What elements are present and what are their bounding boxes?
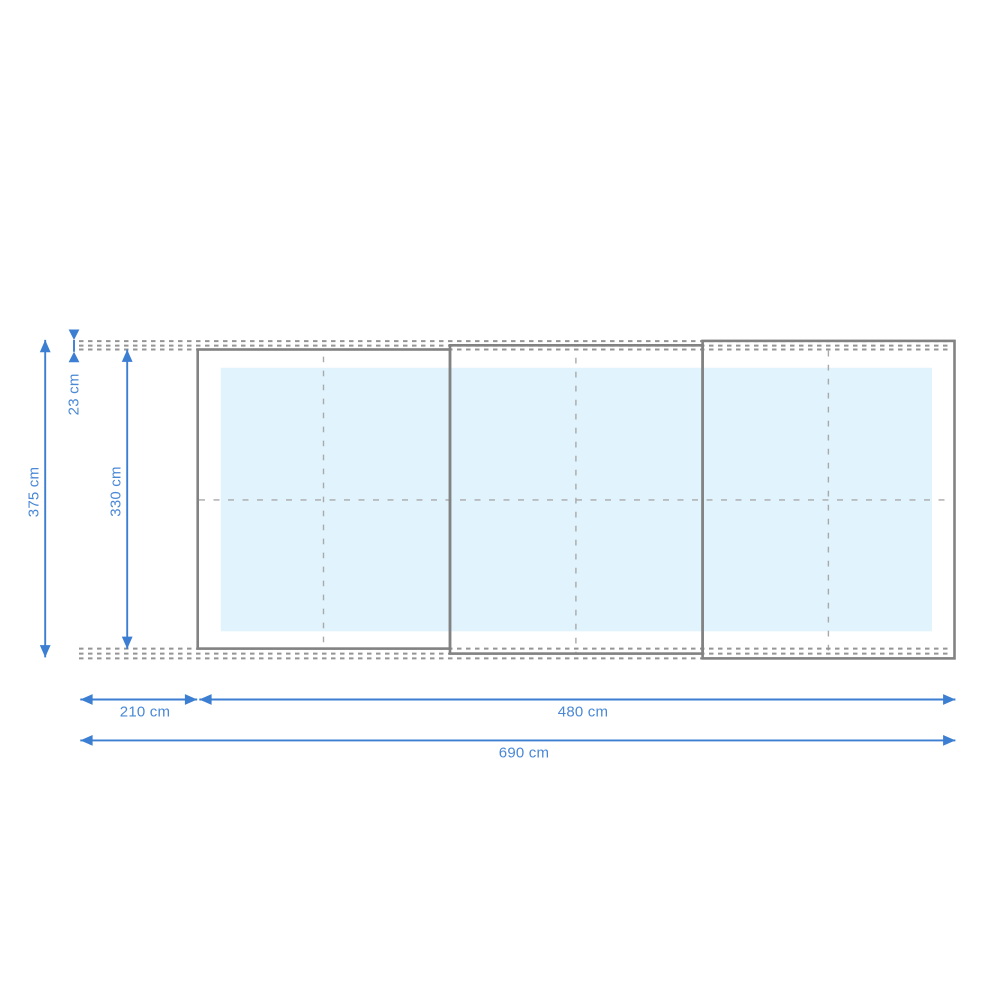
svg-text:23 cm: 23 cm [65,373,82,415]
svg-text:210 cm: 210 cm [120,703,170,720]
svg-text:480 cm: 480 cm [558,703,608,720]
svg-text:690 cm: 690 cm [499,744,549,761]
svg-text:330 cm: 330 cm [107,466,124,516]
svg-text:375 cm: 375 cm [26,467,43,517]
